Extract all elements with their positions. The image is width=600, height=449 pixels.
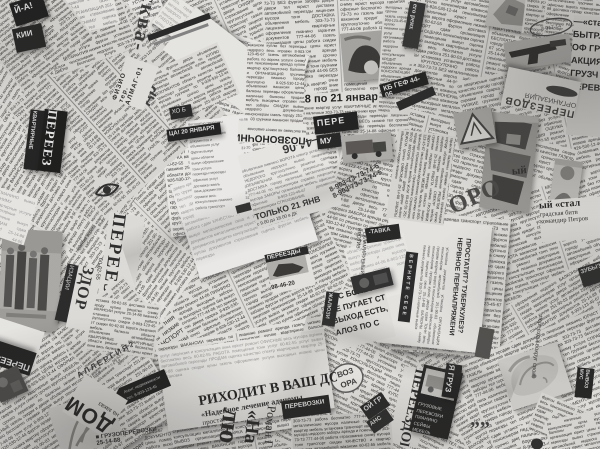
svg-text:8-917-14: 8-917-14 [541, 23, 562, 32]
